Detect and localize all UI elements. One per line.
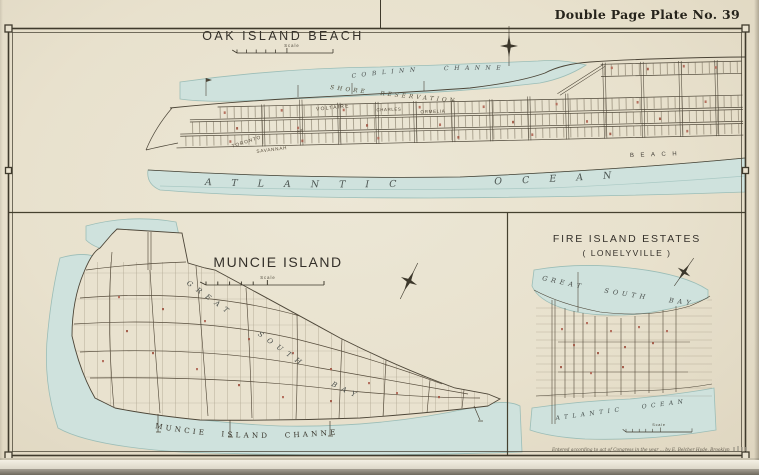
lonelyville-title: FIRE ISLAND ESTATES	[553, 233, 701, 245]
street-savannah: SAVANNAH	[256, 145, 287, 154]
west-tip-lines	[146, 108, 178, 150]
page-bottom-shadow	[0, 469, 759, 475]
oak-scale-label: Scale	[284, 43, 299, 48]
muncie-scale-label: Scale	[260, 275, 275, 280]
lonelyville-scale-label: Scale	[652, 423, 666, 427]
street-charles: CHARLES	[376, 107, 401, 113]
muncie-title: MUNCIE ISLAND	[213, 254, 342, 270]
compass-rose-icon	[500, 26, 518, 66]
page-bottom-paper-strip	[0, 460, 759, 469]
oak-title: OAK ISLAND BEACH	[202, 29, 364, 43]
oak-scale-bar	[232, 48, 333, 53]
map-plate-svg: OAK ISLAND BEACH Scale COBLINN CHANNEL S…	[0, 0, 759, 475]
compass-rose-icon	[392, 259, 426, 303]
credit-line: Entered according to act of Congress in …	[551, 448, 730, 453]
lonelyville-subtitle: ( LONELYVILLE )	[583, 248, 672, 258]
page-right-shadow	[754, 0, 759, 460]
street-ormelia: ORMELIA	[420, 109, 445, 115]
page-left-shadow	[0, 0, 3, 460]
fire-island-estates-map: FIRE ISLAND ESTATES ( LONELYVILLE ) GREA…	[530, 233, 730, 453]
plate-number: Double Page Plate No. 39	[555, 7, 740, 22]
atlas-page: OAK ISLAND BEACH Scale COBLINN CHANNEL S…	[0, 0, 759, 475]
oak-beach-label: BEACH	[630, 151, 683, 159]
oak-island-beach-map: OAK ISLAND BEACH Scale COBLINN CHANNEL S…	[0, 0, 745, 198]
